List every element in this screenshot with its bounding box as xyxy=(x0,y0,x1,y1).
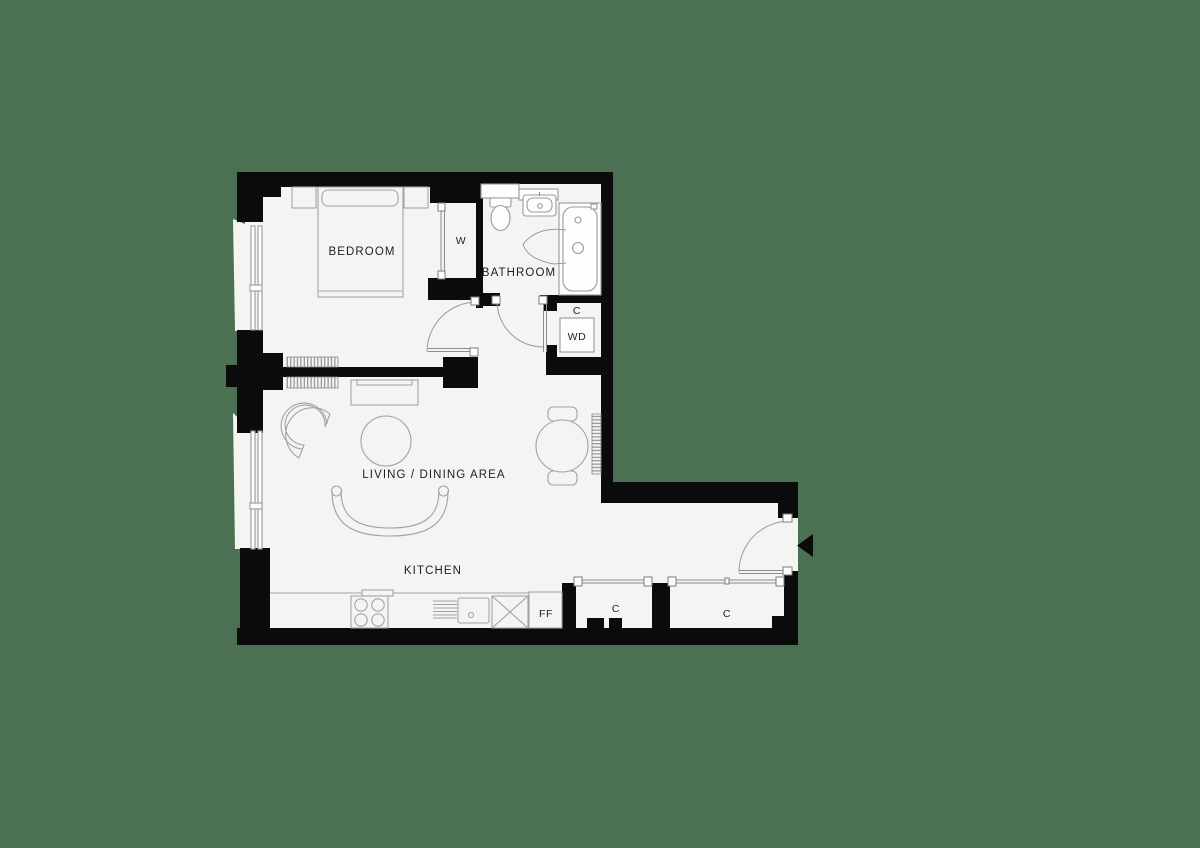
window-bay-top xyxy=(233,219,252,331)
label-washer-dryer: WD xyxy=(568,331,587,343)
tv-unit xyxy=(351,380,418,405)
nightstand-right xyxy=(404,187,428,208)
label-living-dining: LIVING / DINING AREA xyxy=(362,469,505,481)
dining-chair-bottom xyxy=(548,471,577,485)
floor-plan-svg: BEDROOM W BATHROOM C WD LIVING / DINING … xyxy=(0,0,1200,848)
nightstand-left xyxy=(292,187,316,208)
bed xyxy=(318,187,403,297)
label-cupboard-top: C xyxy=(573,305,581,317)
floor-plan-page: BEDROOM W BATHROOM C WD LIVING / DINING … xyxy=(0,0,1200,848)
dining-table xyxy=(536,420,588,472)
dining-chair-top xyxy=(548,407,577,421)
label-bathroom: BATHROOM xyxy=(482,267,556,279)
appliance-unit xyxy=(492,596,528,628)
basin xyxy=(523,192,556,216)
label-wardrobe: W xyxy=(456,235,467,247)
label-fridge-freezer: FF xyxy=(539,608,553,620)
label-bedroom: BEDROOM xyxy=(328,246,395,258)
hob xyxy=(351,590,393,628)
label-kitchen: KITCHEN xyxy=(404,565,462,577)
label-cupboard-hall-right: C xyxy=(723,608,731,620)
bathtub xyxy=(559,203,601,295)
vanity-counter-left xyxy=(481,184,519,198)
radiator-dining xyxy=(592,414,601,474)
window-bay-bottom xyxy=(233,413,252,549)
label-cupboard-hall-left: C xyxy=(612,603,620,615)
toilet xyxy=(490,198,511,231)
